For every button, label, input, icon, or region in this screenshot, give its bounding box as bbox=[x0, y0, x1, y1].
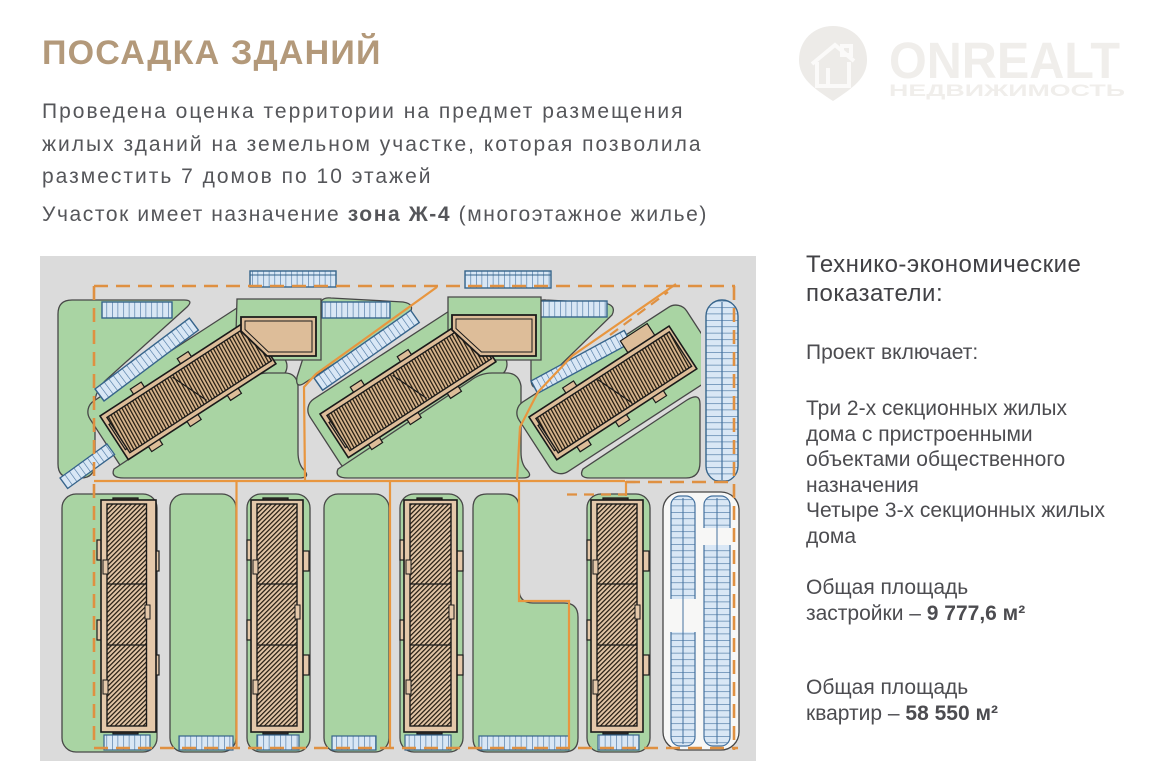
svg-text:НЕДВИЖИМОСТЬ: НЕДВИЖИМОСТЬ bbox=[889, 81, 1125, 100]
